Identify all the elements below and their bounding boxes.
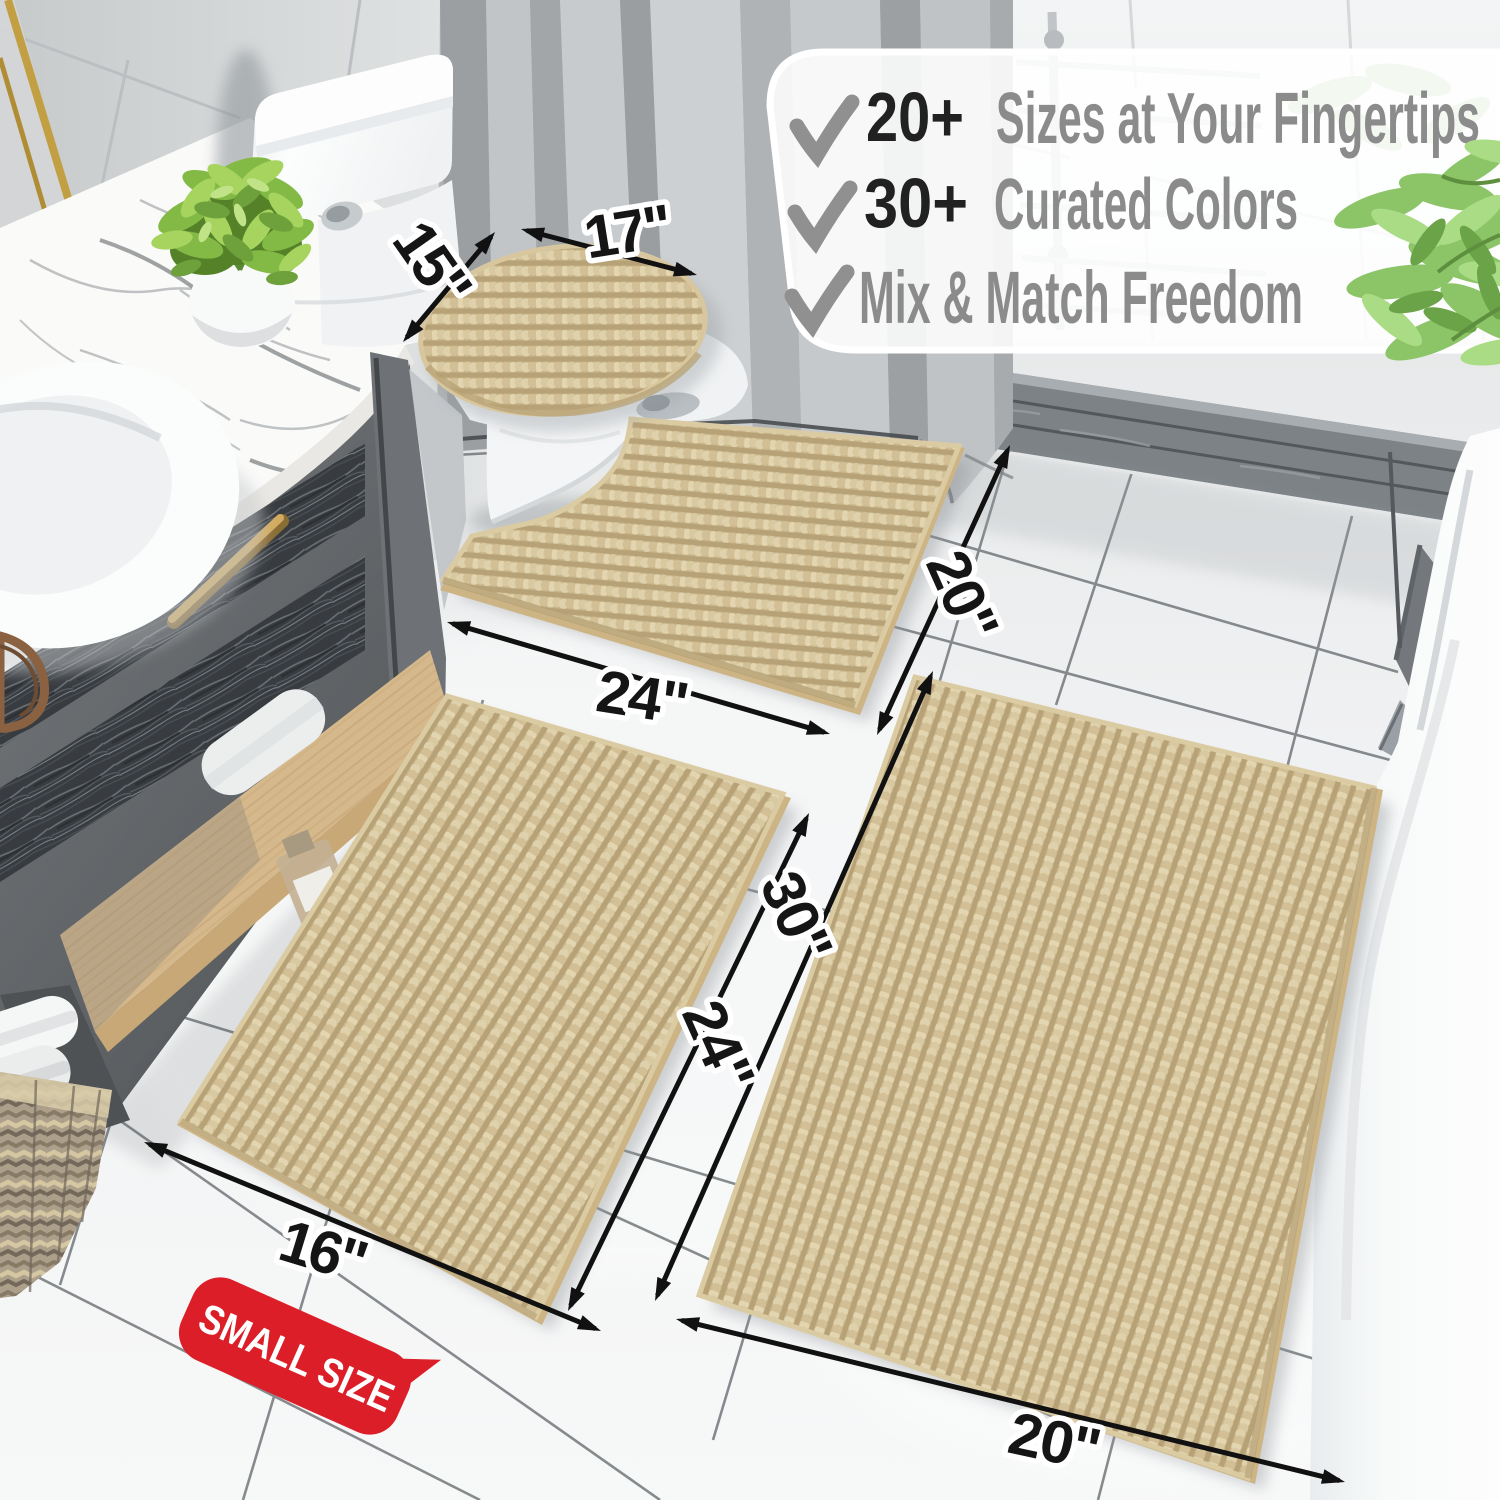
svg-text:20+: 20+	[866, 78, 964, 156]
svg-text:Curated Colors: Curated Colors	[994, 165, 1298, 245]
svg-text:30+: 30+	[864, 164, 968, 242]
svg-text:Mix & Match Freedom: Mix & Match Freedom	[859, 256, 1303, 339]
svg-text:17": 17"	[579, 192, 676, 272]
svg-text:Sizes at Your Fingertips: Sizes at Your Fingertips	[996, 79, 1480, 159]
svg-text:24": 24"	[592, 657, 693, 738]
